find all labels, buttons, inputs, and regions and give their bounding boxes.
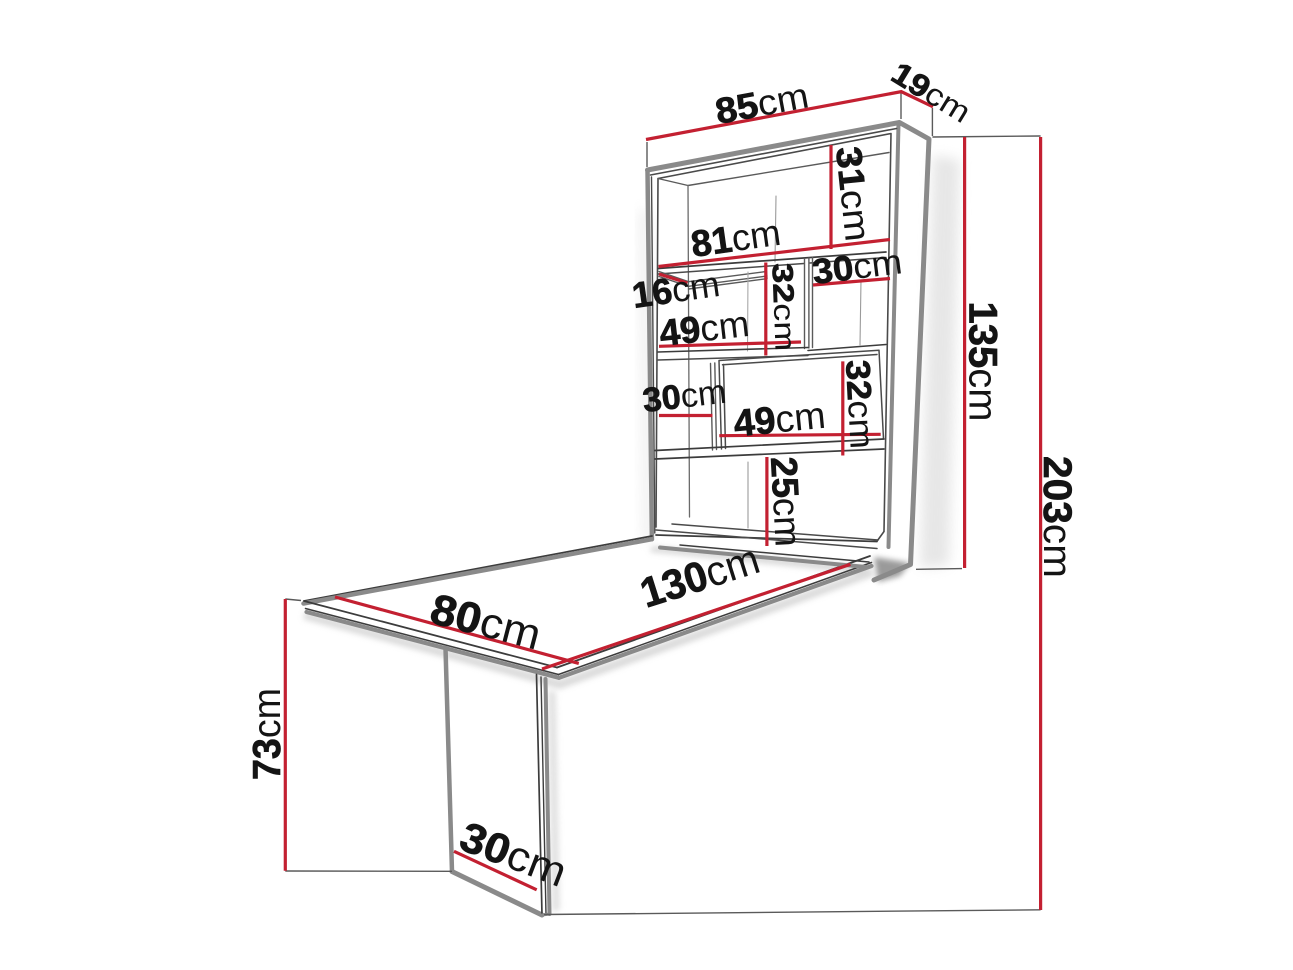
svg-text:25cm: 25cm [763, 456, 809, 548]
svg-text:135cm: 135cm [961, 302, 1005, 422]
svg-text:49cm: 49cm [732, 395, 828, 446]
svg-text:32cm: 32cm [766, 263, 801, 352]
svg-text:32cm: 32cm [838, 359, 881, 450]
svg-text:73cm: 73cm [246, 688, 289, 780]
svg-text:203cm: 203cm [1035, 456, 1079, 578]
